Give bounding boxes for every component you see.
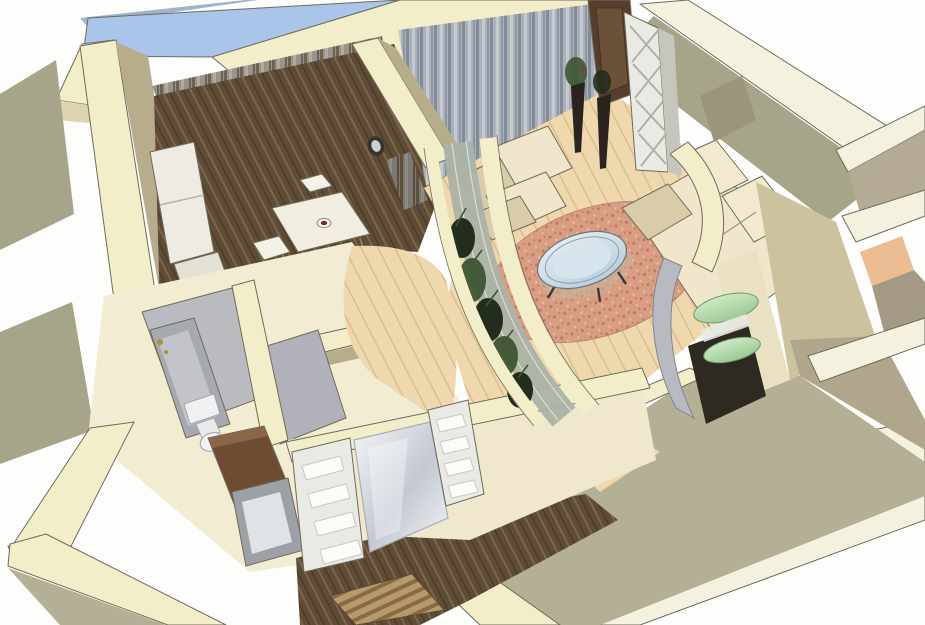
bath-faucet: [157, 339, 163, 345]
apartment-cutaway-rendering: [0, 0, 925, 625]
bath-faucet-handle: [164, 350, 168, 354]
sprig-flower: [581, 68, 585, 72]
scene-svg: [0, 0, 925, 625]
table-centerpiece: [321, 221, 327, 225]
left-outer-face-lower: [0, 302, 94, 464]
vase-sprig: [593, 70, 611, 94]
